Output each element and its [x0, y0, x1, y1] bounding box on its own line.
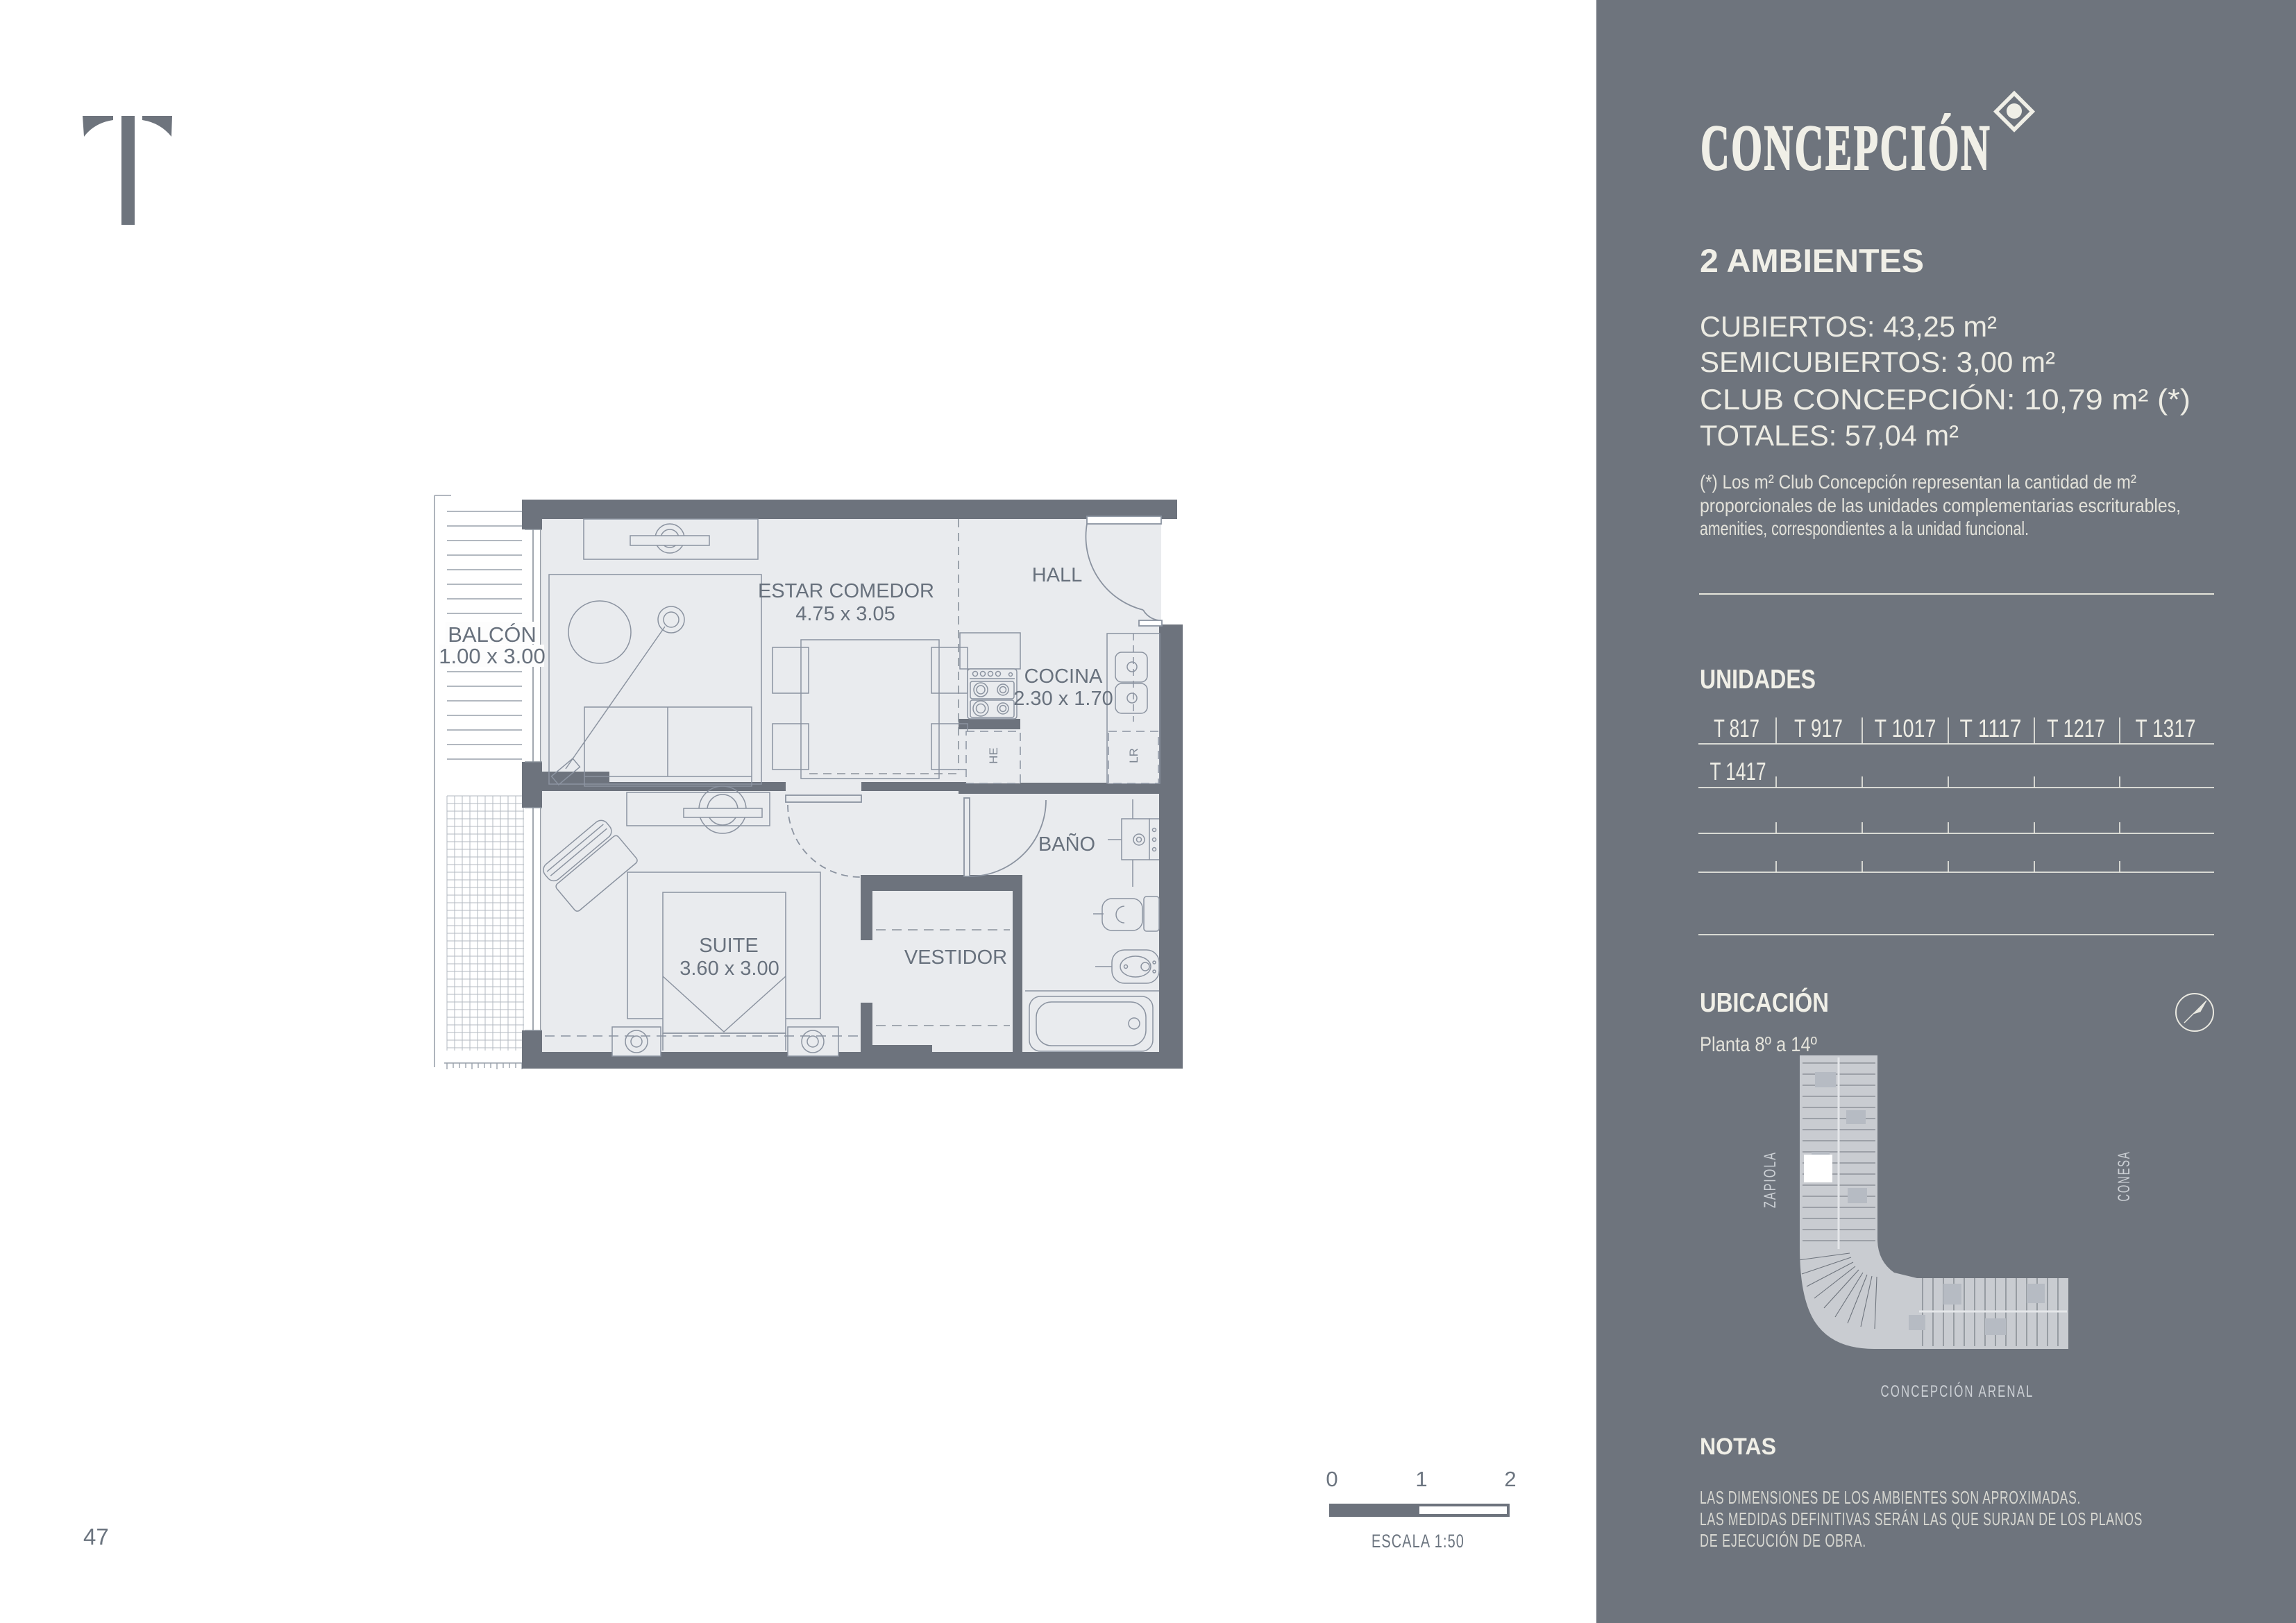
- svg-text:T 1317: T 1317: [2136, 714, 2196, 742]
- svg-text:0: 0: [1326, 1467, 1337, 1491]
- svg-text:ZAPIOLA: ZAPIOLA: [1761, 1151, 1780, 1208]
- svg-text:BALCÓN: BALCÓN: [448, 622, 536, 647]
- svg-text:Planta 8º a 14º: Planta 8º a 14º: [1700, 1033, 1817, 1056]
- svg-text:CUBIERTOS: 43,25 m²: CUBIERTOS: 43,25 m²: [1700, 310, 1997, 343]
- svg-text:4.75 x 3.05: 4.75 x 3.05: [795, 603, 895, 625]
- svg-text:T 1117: T 1117: [1960, 714, 2022, 742]
- svg-text:T 1417: T 1417: [1710, 757, 1766, 785]
- svg-text:CONCEPCIÓN: CONCEPCIÓN: [1700, 112, 1991, 183]
- svg-text:CLUB CONCEPCIÓN: 10,79 m² (*): CLUB CONCEPCIÓN: 10,79 m² (*): [1700, 383, 2191, 416]
- svg-text:LAS DIMENSIONES DE LOS AMBIENT: LAS DIMENSIONES DE LOS AMBIENTES SON APR…: [1700, 1487, 2081, 1508]
- svg-text:TOTALES: 57,04 m²: TOTALES: 57,04 m²: [1700, 419, 1959, 452]
- svg-text:LAS MEDIDAS DEFINITIVAS SERÁN: LAS MEDIDAS DEFINITIVAS SERÁN LAS QUE SU…: [1700, 1509, 2143, 1529]
- svg-text:2: 2: [1504, 1467, 1516, 1491]
- svg-text:LR: LR: [1127, 748, 1140, 763]
- svg-text:ESCALA 1:50: ESCALA 1:50: [1371, 1531, 1464, 1552]
- svg-text:UNIDADES: UNIDADES: [1700, 665, 1816, 695]
- svg-text:T 917: T 917: [1794, 714, 1843, 742]
- svg-text:(*) Los m² Club Concepción rep: (*) Los m² Club Concepción representan l…: [1700, 471, 2136, 493]
- svg-text:proporcionales de las unidades: proporcionales de las unidades complemen…: [1700, 495, 2181, 516]
- svg-text:CONCEPCIÓN ARENAL: CONCEPCIÓN ARENAL: [1881, 1382, 2034, 1401]
- svg-text:NOTAS: NOTAS: [1700, 1434, 1776, 1460]
- svg-text:3.60 x 3.00: 3.60 x 3.00: [679, 958, 779, 980]
- svg-text:1.00 x 3.00: 1.00 x 3.00: [439, 644, 545, 668]
- svg-text:T 1217: T 1217: [2047, 714, 2105, 742]
- svg-text:47: 47: [83, 1524, 109, 1549]
- svg-text:HALL: HALL: [1032, 564, 1083, 586]
- svg-text:DE EJECUCIÓN DE OBRA.: DE EJECUCIÓN DE OBRA.: [1700, 1530, 1866, 1551]
- svg-text:BAÑO: BAÑO: [1038, 832, 1095, 856]
- svg-text:HE: HE: [987, 747, 1000, 764]
- svg-text:ESTAR COMEDOR: ESTAR COMEDOR: [758, 580, 934, 602]
- svg-text:CONESA: CONESA: [2115, 1151, 2134, 1202]
- svg-text:2 AMBIENTES: 2 AMBIENTES: [1700, 242, 1924, 279]
- svg-text:SUITE: SUITE: [699, 935, 758, 957]
- svg-text:COCINA: COCINA: [1024, 665, 1103, 688]
- svg-text:UBICACIÓN: UBICACIÓN: [1700, 987, 1829, 1018]
- svg-text:2.30 x 1.70: 2.30 x 1.70: [1013, 688, 1113, 710]
- svg-text:VESTIDOR: VESTIDOR: [904, 946, 1007, 969]
- svg-text:amenities, correspondientes a: amenities, correspondientes a la unidad …: [1700, 518, 2029, 539]
- svg-text:1: 1: [1415, 1467, 1427, 1491]
- svg-text:T 1017: T 1017: [1875, 714, 1936, 742]
- svg-text:SEMICUBIERTOS: 3,00 m²: SEMICUBIERTOS: 3,00 m²: [1700, 346, 2055, 378]
- svg-text:T 817: T 817: [1714, 714, 1759, 742]
